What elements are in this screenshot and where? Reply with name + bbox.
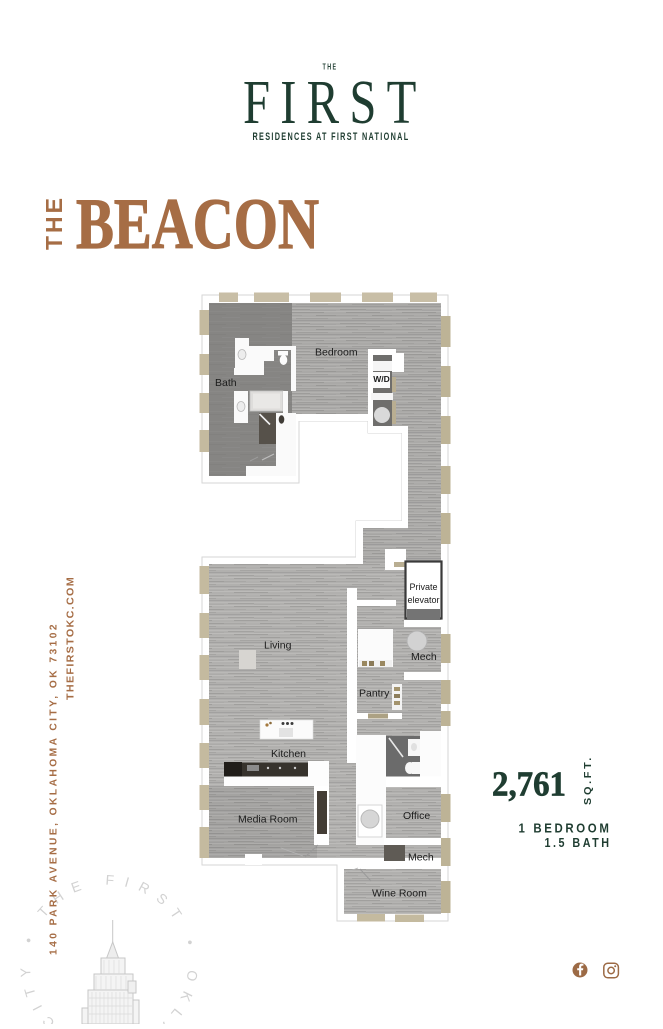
svg-text:Kitchen: Kitchen (271, 748, 306, 760)
svg-text:Bedroom: Bedroom (315, 347, 358, 359)
svg-text:Mech: Mech (411, 651, 437, 663)
svg-text:1 BEDROOM: 1 BEDROOM (519, 821, 612, 836)
svg-text:Bath: Bath (215, 377, 237, 389)
svg-text:Living: Living (264, 640, 292, 652)
svg-text:Pantry: Pantry (359, 688, 390, 700)
svg-text:Office: Office (403, 810, 430, 822)
svg-text:Media Room: Media Room (238, 814, 298, 826)
svg-text:Wine Room: Wine Room (372, 888, 427, 900)
svg-text:elevator: elevator (407, 595, 439, 605)
svg-text:140 PARK AVENUE, OKLAHOMA CITY: 140 PARK AVENUE, OKLAHOMA CITY, OK 73102 (49, 622, 60, 955)
svg-text:Mech: Mech (408, 852, 434, 864)
svg-text:THEFIRSTOKC.COM: THEFIRSTOKC.COM (66, 576, 77, 700)
svg-text:1.5 BATH: 1.5 BATH (545, 835, 612, 850)
svg-text:SQ.FT.: SQ.FT. (583, 755, 594, 805)
svg-text:BEACON: BEACON (76, 184, 319, 264)
svg-text:RESIDENCES AT FIRST NATIONAL: RESIDENCES AT FIRST NATIONAL (253, 131, 410, 143)
svg-text:2,761: 2,761 (492, 765, 566, 804)
svg-text:FIRST: FIRST (243, 68, 427, 137)
svg-text:THE: THE (41, 195, 67, 250)
svg-text:Private: Private (409, 582, 437, 592)
svg-text:W/D: W/D (373, 374, 390, 384)
